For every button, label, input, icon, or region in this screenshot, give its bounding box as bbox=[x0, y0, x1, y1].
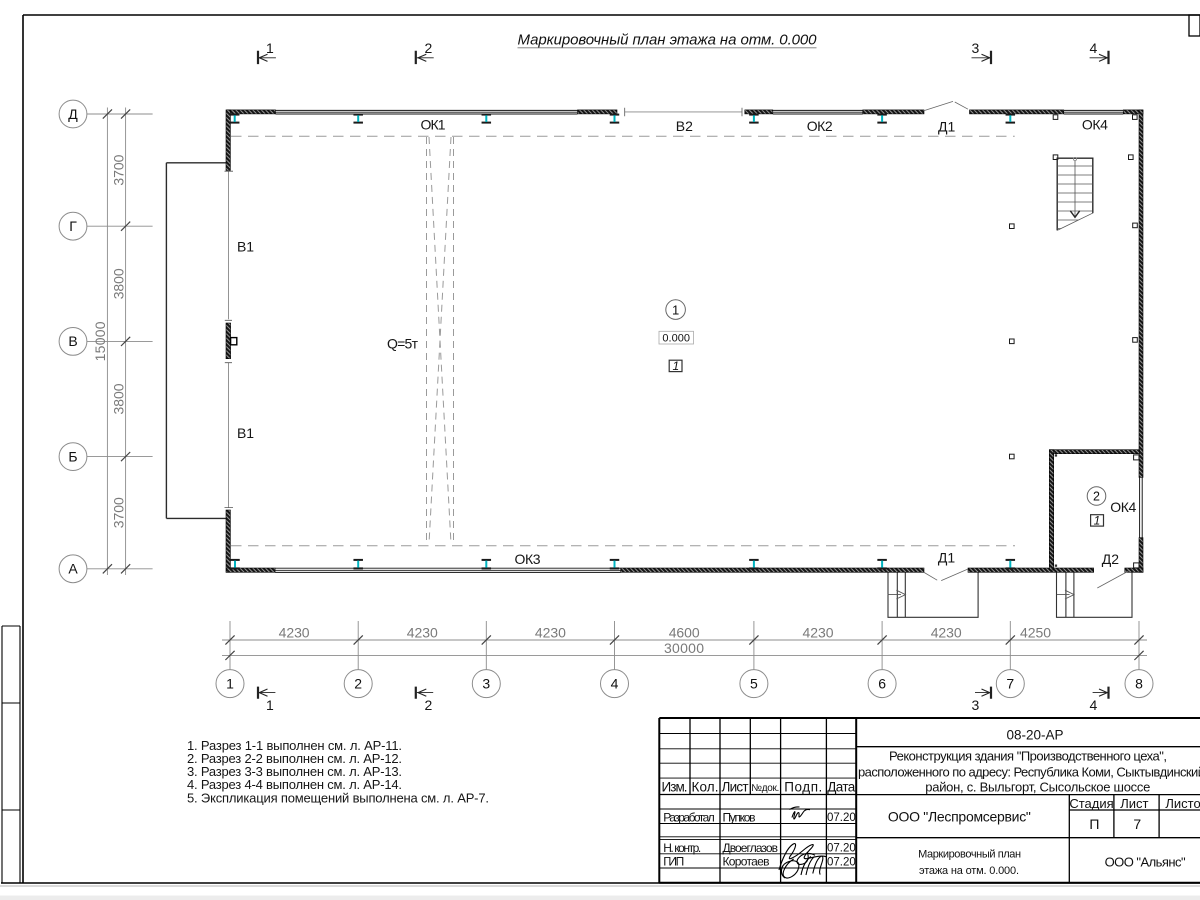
svg-text:07.20: 07.20 bbox=[827, 812, 856, 824]
svg-text:ГИП: ГИП bbox=[663, 855, 684, 869]
svg-text:1: 1 bbox=[672, 302, 679, 317]
svg-text:07.20: 07.20 bbox=[827, 856, 856, 868]
svg-text:07.20: 07.20 bbox=[827, 842, 856, 854]
svg-text:3: 3 bbox=[972, 40, 980, 56]
svg-text:4600: 4600 bbox=[669, 624, 700, 640]
svg-text:Маркировочный план этажа на от: Маркировочный план этажа на отм. 0.000 bbox=[518, 31, 818, 48]
svg-text:Д2: Д2 bbox=[1102, 551, 1119, 567]
svg-text:Кол.: Кол. bbox=[692, 780, 719, 795]
svg-text:4: 4 bbox=[1090, 40, 1098, 56]
svg-text:Д1: Д1 bbox=[938, 550, 955, 566]
svg-text:ООО "Альянс": ООО "Альянс" bbox=[1105, 854, 1186, 869]
svg-text:ОК1: ОК1 bbox=[421, 116, 446, 132]
svg-text:2: 2 bbox=[354, 675, 362, 691]
svg-text:4230: 4230 bbox=[407, 624, 438, 640]
svg-text:Н. контр.: Н. контр. bbox=[663, 841, 701, 855]
svg-text:2: 2 bbox=[425, 697, 433, 713]
svg-text:А: А bbox=[68, 561, 78, 577]
svg-text:2: 2 bbox=[425, 40, 433, 56]
svg-text:Дата: Дата bbox=[827, 780, 855, 795]
svg-text:ОК3: ОК3 bbox=[515, 551, 541, 567]
svg-text:30000: 30000 bbox=[664, 640, 704, 656]
svg-text:4250: 4250 bbox=[1020, 624, 1051, 640]
svg-text:1: 1 bbox=[672, 359, 679, 373]
svg-text:район, с. Выльгорт, Сысольское: район, с. Выльгорт, Сысольское шоссе bbox=[925, 779, 1150, 794]
svg-text:Маркировочный план: Маркировочный план bbox=[918, 848, 1021, 860]
svg-text:В1: В1 bbox=[237, 238, 254, 254]
svg-text:3: 3 bbox=[482, 675, 490, 691]
svg-text:В: В bbox=[68, 333, 77, 349]
svg-text:15000: 15000 bbox=[92, 321, 108, 361]
svg-text:В1: В1 bbox=[237, 425, 254, 441]
svg-text:П: П bbox=[1089, 816, 1099, 832]
svg-text:3800: 3800 bbox=[111, 268, 127, 299]
svg-text:Г: Г bbox=[69, 218, 77, 234]
svg-text:Изм.: Изм. bbox=[662, 780, 688, 795]
svg-text:3700: 3700 bbox=[111, 154, 127, 185]
svg-text:Листов: Листов bbox=[1165, 796, 1200, 811]
svg-text:1: 1 bbox=[226, 675, 234, 691]
svg-text:4230: 4230 bbox=[279, 624, 310, 640]
svg-text:1: 1 bbox=[1094, 514, 1101, 528]
svg-text:4: 4 bbox=[611, 675, 619, 691]
svg-text:6: 6 bbox=[878, 675, 886, 691]
svg-text:Д: Д bbox=[68, 106, 78, 122]
svg-text:Двоеглазов: Двоеглазов bbox=[723, 841, 779, 855]
svg-text:этажа на отм. 0.000.: этажа на отм. 0.000. bbox=[919, 865, 1019, 877]
svg-text:В2: В2 bbox=[676, 118, 693, 134]
svg-text:5: 5 bbox=[750, 675, 758, 691]
svg-text:Реконструкция здания "Производ: Реконструкция здания "Производственного … bbox=[889, 749, 1167, 764]
svg-text:4230: 4230 bbox=[931, 624, 962, 640]
svg-text:4: 4 bbox=[1090, 697, 1098, 713]
svg-text:расположенного по адресу: Респ: расположенного по адресу: Республика Ком… bbox=[858, 765, 1200, 780]
svg-text:7: 7 bbox=[1133, 816, 1141, 832]
svg-text:08-20-АР: 08-20-АР bbox=[1006, 728, 1063, 743]
svg-text:3700: 3700 bbox=[111, 497, 127, 528]
svg-text:7: 7 bbox=[1006, 675, 1014, 691]
svg-text:Коротаев: Коротаев bbox=[723, 855, 770, 869]
svg-text:Разработал: Разработал bbox=[663, 811, 715, 825]
svg-text:Д1: Д1 bbox=[938, 119, 955, 135]
svg-text:Пупков: Пупков bbox=[723, 811, 756, 825]
svg-text:Q=5т: Q=5т bbox=[387, 335, 419, 351]
svg-text:Подп.: Подп. bbox=[784, 780, 822, 795]
svg-text:3800: 3800 bbox=[111, 383, 127, 414]
svg-text:8: 8 bbox=[1135, 675, 1143, 691]
svg-text:4230: 4230 bbox=[535, 624, 566, 640]
svg-text:1: 1 bbox=[266, 697, 274, 713]
svg-text:2: 2 bbox=[1093, 490, 1100, 504]
svg-text:№док.: №док. bbox=[751, 783, 779, 794]
svg-text:Стадия: Стадия bbox=[1069, 796, 1113, 811]
svg-text:Лист: Лист bbox=[722, 780, 749, 795]
svg-text:5. Экспликация помещений выпол: 5. Экспликация помещений выполнена см. л… bbox=[187, 790, 489, 805]
svg-text:ОК2: ОК2 bbox=[807, 118, 833, 134]
svg-text:Б: Б bbox=[68, 448, 77, 464]
svg-text:4230: 4230 bbox=[803, 624, 834, 640]
svg-text:ООО "Леспромсервис": ООО "Леспромсервис" bbox=[888, 808, 1031, 824]
svg-text:0.000: 0.000 bbox=[662, 333, 690, 345]
svg-text:Лист: Лист bbox=[1120, 796, 1148, 811]
svg-text:3: 3 bbox=[972, 697, 980, 713]
svg-text:1: 1 bbox=[266, 40, 274, 56]
svg-text:ОК4: ОК4 bbox=[1110, 499, 1136, 515]
svg-text:ОК4: ОК4 bbox=[1082, 116, 1108, 132]
